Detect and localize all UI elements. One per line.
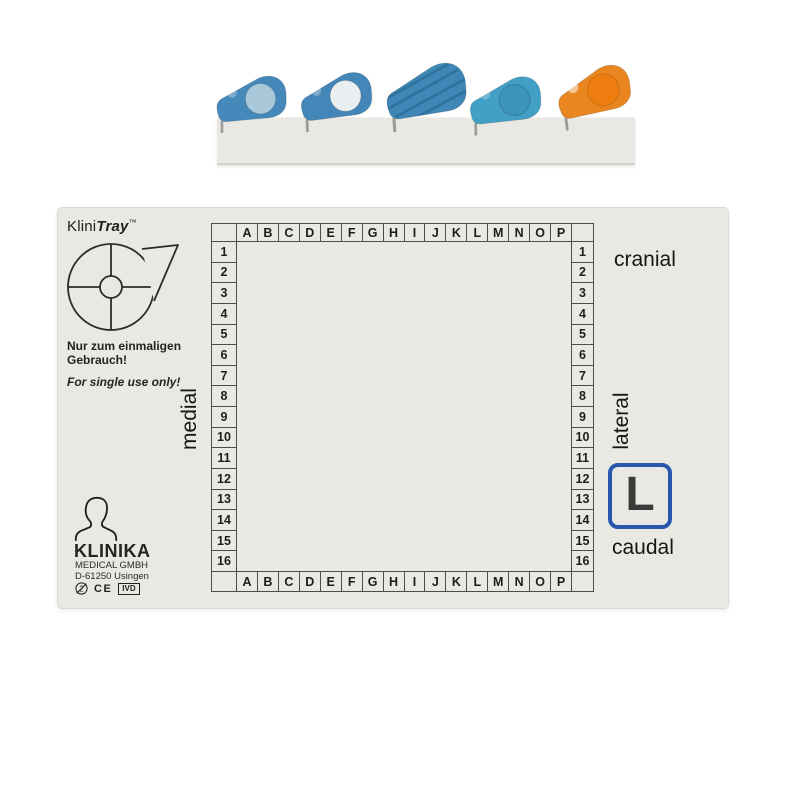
grid-row-11-right: 11	[571, 447, 594, 469]
left-side-marker: L	[625, 471, 654, 519]
grid-col-D-bottom: D	[299, 571, 321, 592]
grid-corner-top-left	[211, 223, 237, 242]
grid-row-6-right: 6	[571, 344, 594, 366]
grid-row-4-right: 4	[571, 303, 594, 325]
grid-col-J-top: J	[424, 223, 446, 242]
clip-blue-plain	[466, 73, 545, 136]
clip-icon	[297, 69, 377, 134]
grid-row-4-left: 4	[211, 303, 237, 325]
grid-col-I-top: I	[404, 223, 426, 242]
clip-blue-frosted	[214, 73, 290, 134]
grid-col-P-top: P	[550, 223, 572, 242]
grid-col-L-bottom: L	[466, 571, 488, 592]
grid-corner-top-right	[571, 223, 594, 242]
grid-work-area	[236, 241, 572, 572]
grid-row-2-left: 2	[211, 262, 237, 284]
clip-icon	[214, 73, 290, 134]
product-photo: KliniTray™ Nur zum einmaligen Gebrauch! …	[0, 0, 800, 800]
grid-row-14-right: 14	[571, 509, 594, 531]
brand-wordmark: KliniTray™	[67, 218, 137, 235]
clip-icon	[380, 58, 475, 134]
grid-row-6-left: 6	[211, 344, 237, 366]
grid-row-12-left: 12	[211, 468, 237, 490]
clip-orange	[551, 59, 638, 132]
grid-row-7-left: 7	[211, 365, 237, 387]
grid-row-10-right: 10	[571, 427, 594, 449]
grid-col-K-top: K	[445, 223, 467, 242]
label-lateral: lateral	[610, 366, 634, 476]
tray-pictogram-icon	[66, 240, 186, 340]
grid-row-3-left: 3	[211, 282, 237, 304]
grid-col-O-bottom: O	[529, 571, 551, 592]
grid-row-1-left: 1	[211, 241, 237, 263]
grid-corner-bottom-left	[211, 571, 237, 592]
grid-corner-bottom-right	[571, 571, 594, 592]
grid-row-16-left: 16	[211, 550, 237, 572]
grid-col-K-bottom: K	[445, 571, 467, 592]
grid-col-B-top: B	[257, 223, 279, 242]
grid-col-O-top: O	[529, 223, 551, 242]
grid-row-2-right: 2	[571, 262, 594, 284]
grid-row-9-left: 9	[211, 406, 237, 428]
grid-row-10-left: 10	[211, 427, 237, 449]
grid-bottom-header: ABCDEFGHIJKLMNOP	[211, 571, 594, 592]
grid-col-F-bottom: F	[341, 571, 363, 592]
grid-row-13-right: 13	[571, 489, 594, 511]
clip-blue-ribbed	[380, 58, 475, 134]
klinitray-board: KliniTray™ Nur zum einmaligen Gebrauch! …	[57, 207, 729, 609]
grid-row-15-right: 15	[571, 530, 594, 552]
grid-col-P-bottom: P	[550, 571, 572, 592]
label-medial: medial	[178, 364, 202, 474]
grid-row-5-right: 5	[571, 324, 594, 346]
grid-col-I-bottom: I	[404, 571, 426, 592]
clip-blue-white	[297, 69, 377, 134]
grid-col-H-bottom: H	[383, 571, 405, 592]
grid-row-12-right: 12	[571, 468, 594, 490]
grid-left-header: 12345678910111213141516	[211, 241, 237, 572]
single-use-de-line1: Nur zum einmaligen	[67, 339, 181, 353]
grid-row-8-right: 8	[571, 385, 594, 407]
grid-col-M-bottom: M	[487, 571, 509, 592]
label-caudal: caudal	[612, 536, 674, 560]
grid-col-D-top: D	[299, 223, 321, 242]
ivd-mark: IVD	[118, 583, 139, 595]
grid-row-11-left: 11	[211, 447, 237, 469]
clip-icon	[466, 73, 545, 136]
single-use-en: For single use only!	[67, 375, 181, 389]
grid-row-7-right: 7	[571, 365, 594, 387]
manufacturer-logo-text: KLINIKA	[74, 541, 151, 562]
grid-col-A-top: A	[236, 223, 258, 242]
grid-top-header: ABCDEFGHIJKLMNOP	[211, 223, 594, 242]
grid-col-N-top: N	[508, 223, 530, 242]
grid-col-F-top: F	[341, 223, 363, 242]
grid-col-G-bottom: G	[362, 571, 384, 592]
ce-mark: CE	[94, 583, 112, 595]
grid-col-N-bottom: N	[508, 571, 530, 592]
grid-col-B-bottom: B	[257, 571, 279, 592]
grid-col-E-top: E	[320, 223, 342, 242]
single-use-de-line2: Gebrauch!	[67, 353, 181, 367]
manufacturer-line1: MEDICAL GMBH	[75, 560, 148, 571]
grid-col-A-bottom: A	[236, 571, 258, 592]
grid-col-C-bottom: C	[278, 571, 300, 592]
left-side-marker-box: L	[608, 463, 672, 529]
grid-right-header: 12345678910111213141516	[571, 241, 594, 572]
label-cranial: cranial	[614, 248, 676, 272]
grid-col-L-top: L	[466, 223, 488, 242]
grid-col-H-top: H	[383, 223, 405, 242]
grid-row-14-left: 14	[211, 509, 237, 531]
grid-row-1-right: 1	[571, 241, 594, 263]
manufacturer-line2: D-61250 Usingen	[75, 571, 149, 582]
grid-row-5-left: 5	[211, 324, 237, 346]
grid-row-15-left: 15	[211, 530, 237, 552]
do-not-reuse-icon: 2	[75, 582, 88, 595]
grid-row-8-left: 8	[211, 385, 237, 407]
clip-icon	[551, 59, 638, 132]
brand-prefix: Klini	[67, 218, 96, 235]
grid-row-13-left: 13	[211, 489, 237, 511]
grid-col-C-top: C	[278, 223, 300, 242]
brand-name: Tray	[96, 218, 128, 235]
head-silhouette-icon	[71, 496, 121, 542]
grid-row-3-right: 3	[571, 282, 594, 304]
trademark-symbol: ™	[129, 218, 137, 227]
grid-row-9-right: 9	[571, 406, 594, 428]
grid-col-J-bottom: J	[424, 571, 446, 592]
grid-row-16-right: 16	[571, 550, 594, 572]
grid-col-E-bottom: E	[320, 571, 342, 592]
single-use-note: Nur zum einmaligen Gebrauch! For single …	[67, 339, 181, 389]
grid-col-M-top: M	[487, 223, 509, 242]
grid-col-G-top: G	[362, 223, 384, 242]
